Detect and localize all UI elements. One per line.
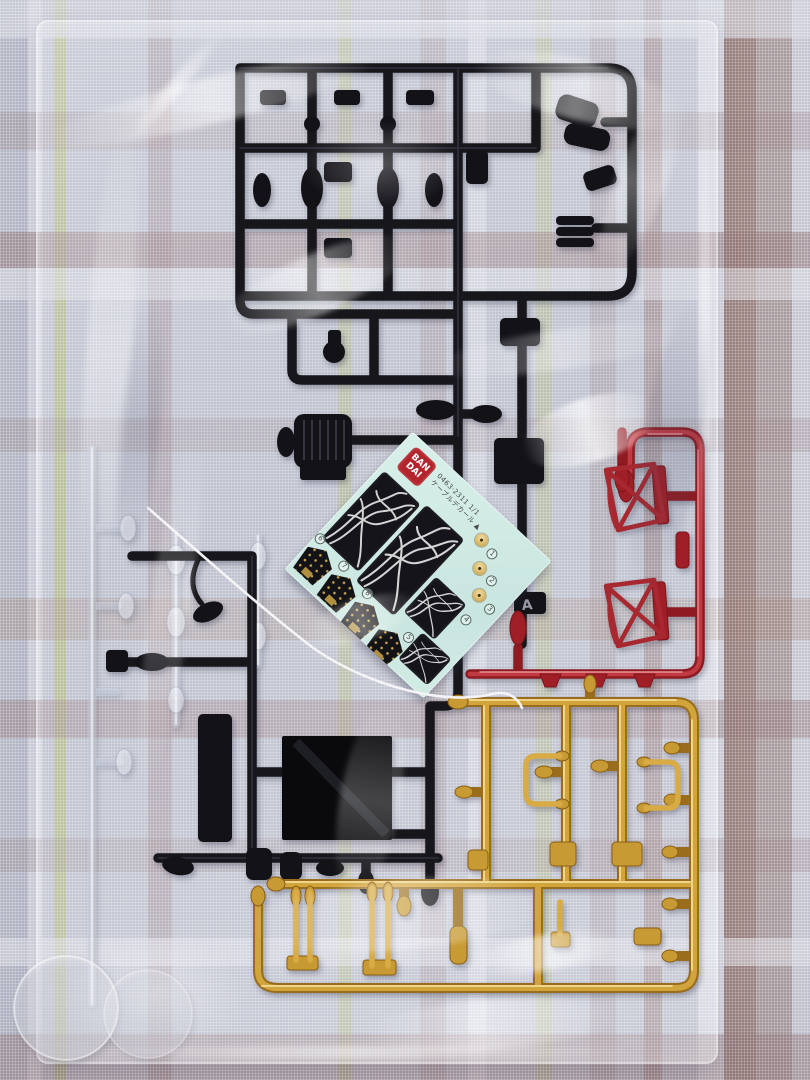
overlay-layer: [0, 0, 810, 1080]
photo-model-kit-bag: A: [0, 0, 810, 1080]
white-cord: [148, 508, 522, 708]
